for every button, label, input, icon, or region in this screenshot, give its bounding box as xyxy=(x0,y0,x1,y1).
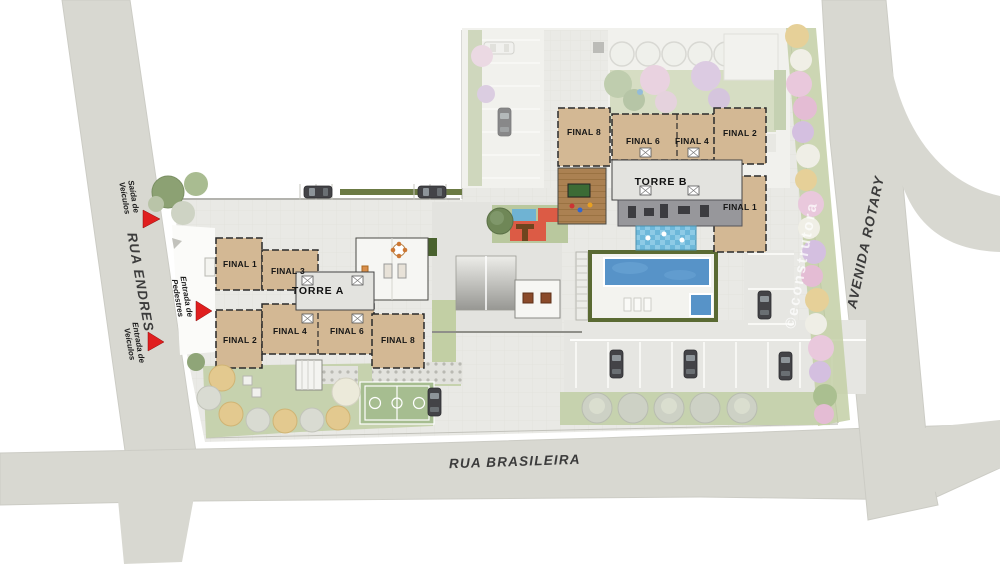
flower-icon xyxy=(805,288,829,312)
tree-icon xyxy=(708,88,730,110)
elevator-icon xyxy=(688,186,699,195)
flower-icon xyxy=(796,144,820,168)
street-stub-south xyxy=(118,497,194,564)
pool-loungers xyxy=(624,298,651,311)
car-icon xyxy=(498,108,511,136)
car-icon xyxy=(684,350,697,378)
tree-icon xyxy=(477,85,495,103)
tree-icon xyxy=(326,406,350,430)
tree-icon xyxy=(171,201,195,225)
flower-icon xyxy=(805,313,827,335)
site-plan: Saída deVeículos Entrada dePedestres Ent… xyxy=(0,0,1000,582)
flower-icon xyxy=(790,49,812,71)
elevator-icon xyxy=(640,148,651,157)
water-strip xyxy=(512,209,536,222)
elevator-icon xyxy=(352,276,363,285)
unit-label-b-final-1: FINAL 1 xyxy=(723,202,757,212)
kids-pool xyxy=(690,294,712,316)
unit-label-a-final-6: FINAL 6 xyxy=(330,326,364,336)
flower-icon xyxy=(809,361,831,383)
tree-icon xyxy=(332,378,360,406)
car-icon xyxy=(418,186,446,198)
unit-label-b-final-4: FINAL 4 xyxy=(675,136,709,146)
car-icon xyxy=(304,186,332,198)
tree-icon xyxy=(273,409,297,433)
pool-highlight xyxy=(664,270,696,280)
tree-icon xyxy=(734,398,750,414)
unit-label-a-final-2: FINAL 2 xyxy=(223,335,257,345)
upper-structure xyxy=(593,42,604,53)
tree-icon xyxy=(246,408,270,432)
small-structure xyxy=(243,376,252,385)
tree-icon xyxy=(691,61,721,91)
tree-icon xyxy=(219,402,243,426)
water-feature-icon xyxy=(637,89,643,95)
elevator-icon xyxy=(302,276,313,285)
flower-icon xyxy=(785,24,809,48)
tree-icon xyxy=(618,393,648,423)
unit-label-a-final-4: FINAL 4 xyxy=(273,326,307,336)
tree-icon xyxy=(655,91,677,113)
car-icon xyxy=(779,352,792,380)
small-structure xyxy=(252,388,261,397)
flower-icon xyxy=(795,169,817,191)
utility-structure xyxy=(296,360,322,390)
elevator-icon xyxy=(352,314,363,323)
unit-label-a-final-8: FINAL 8 xyxy=(381,335,415,345)
elevator-icon xyxy=(688,148,699,157)
tree-icon xyxy=(300,408,324,432)
trees-bottom-band xyxy=(582,393,757,423)
tower-a-label: TORRE A xyxy=(292,285,344,297)
unit-label-b-final-2: FINAL 2 xyxy=(723,128,757,138)
site-plan-svg: Saída deVeículos Entrada dePedestres Ent… xyxy=(0,0,1000,582)
game-room xyxy=(558,168,606,224)
tree-icon xyxy=(589,398,605,414)
bbq-room xyxy=(515,280,560,318)
tree-icon xyxy=(184,172,208,196)
flower-icon xyxy=(792,121,814,143)
round-planters xyxy=(610,42,738,66)
tree-icon xyxy=(661,398,677,414)
pool-highlight xyxy=(612,262,648,274)
tree-icon xyxy=(640,65,670,95)
pool-area xyxy=(576,252,716,320)
flower-icon xyxy=(786,71,812,97)
car-icon xyxy=(428,388,441,416)
upper-hedge xyxy=(774,70,786,130)
upper-roof xyxy=(724,34,778,80)
unit-label-b-final-6: FINAL 6 xyxy=(626,136,660,146)
unit-label-a-final-1: FINAL 1 xyxy=(223,259,257,269)
tower-b-unit-final8 xyxy=(558,108,610,166)
tree-icon xyxy=(490,211,504,225)
elevator-icon xyxy=(302,314,313,323)
tree-icon xyxy=(187,353,205,371)
pool-stairs xyxy=(576,252,588,320)
kids-water-area xyxy=(636,226,696,250)
unit-label-a-final-3: FINAL 3 xyxy=(271,266,305,276)
sports-court xyxy=(360,382,434,424)
pergola xyxy=(522,229,528,241)
car-icon xyxy=(610,350,623,378)
guardhouse xyxy=(205,258,215,276)
tree-icon xyxy=(197,386,221,410)
unit-label-b-final-8: FINAL 8 xyxy=(567,127,601,137)
tree-icon xyxy=(471,45,493,67)
pergola xyxy=(516,224,534,229)
flower-icon xyxy=(793,96,817,120)
flower-icon xyxy=(808,335,834,361)
tree-icon xyxy=(690,393,720,423)
tree-icon xyxy=(148,196,164,212)
car-icon xyxy=(758,291,771,319)
flower-icon xyxy=(814,404,834,424)
tower-b-label: TORRE B xyxy=(635,176,688,188)
